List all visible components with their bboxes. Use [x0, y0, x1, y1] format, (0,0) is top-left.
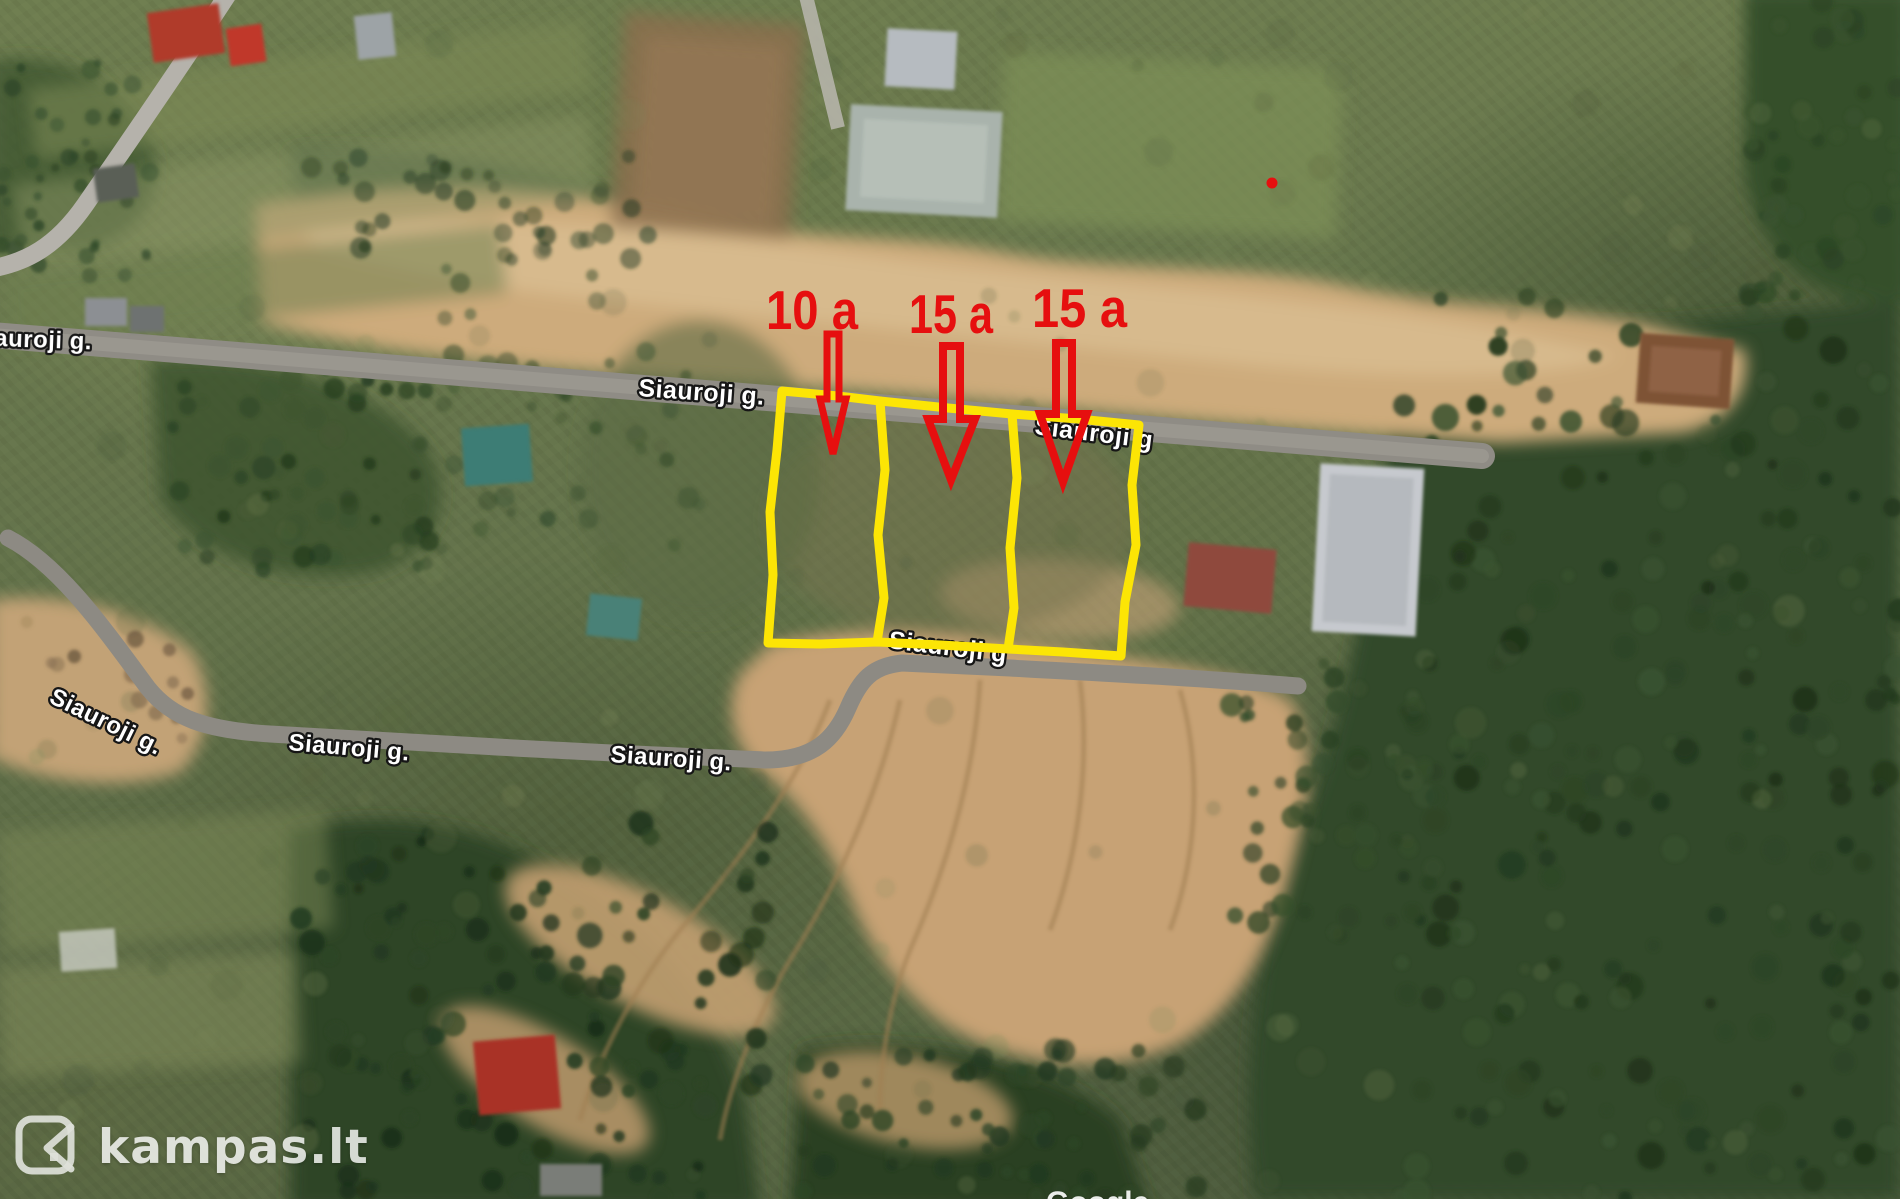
- plot-area-label: 15 a: [1032, 277, 1127, 339]
- plot-area-label: 10 a: [766, 279, 858, 341]
- map-overlay: auroji g. Siauroji g. Siauroji g Siauroj…: [0, 0, 1900, 1199]
- plot-divider: [877, 401, 885, 642]
- satellite-map: auroji g. Siauroji g. Siauroji g Siauroj…: [0, 0, 1900, 1199]
- street-label: auroji g.: [0, 325, 93, 355]
- street-label: Siauroji g.: [610, 741, 733, 776]
- kampas-logo-icon: [14, 1114, 80, 1180]
- google-watermark: Google: [1046, 1186, 1149, 1199]
- kampas-watermark-text: kampas.lt: [98, 1120, 369, 1175]
- plot-area-label: 15 a: [909, 283, 993, 345]
- kampas-watermark: kampas.lt: [14, 1114, 369, 1180]
- red-dot-marker: [1267, 178, 1278, 189]
